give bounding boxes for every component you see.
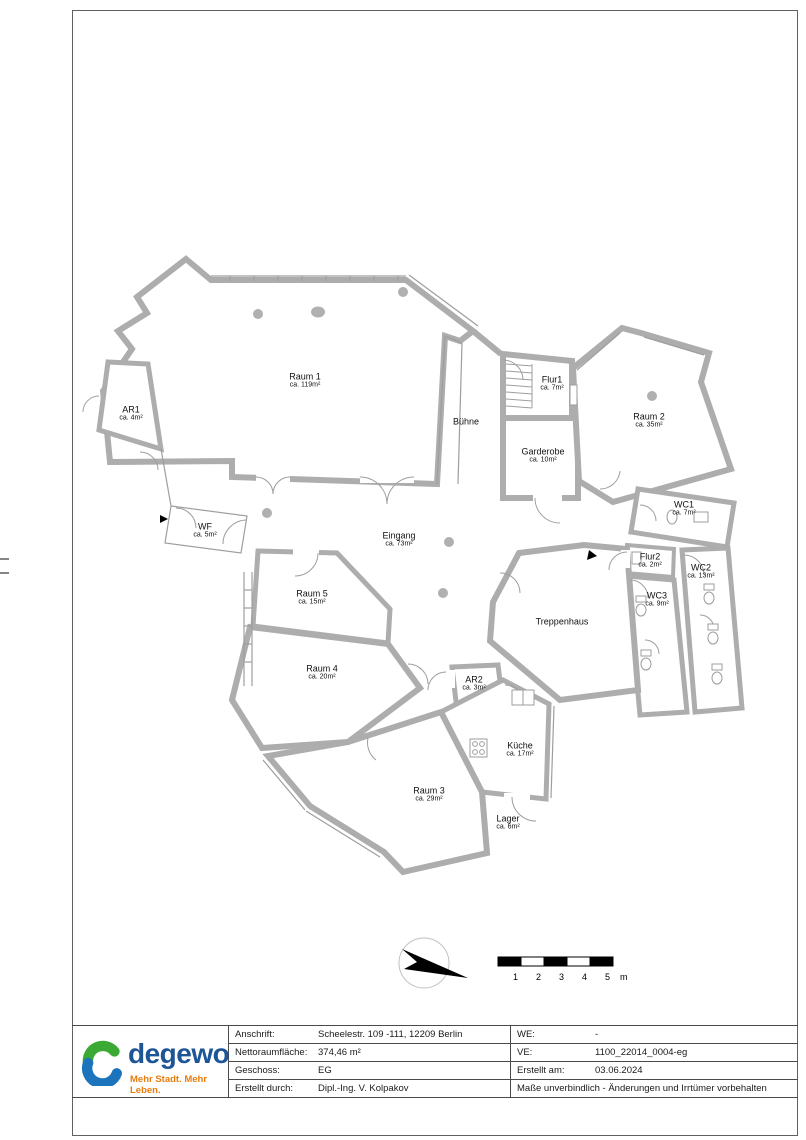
room-label-treppenhaus: Treppenhaus bbox=[536, 617, 589, 626]
field-ve-value: 1100_22014_0004-eg bbox=[595, 1047, 687, 1058]
room-label-buehne: Bühne bbox=[453, 417, 479, 426]
scale-bar-labels: 1 2 3 4 5 m bbox=[498, 972, 648, 984]
degewo-logo: degewo Mehr Stadt. Mehr Leben. bbox=[80, 1036, 230, 1098]
room-label-garderobe: Garderobe ca. 10m² bbox=[521, 448, 564, 465]
field-we-label: WE: bbox=[517, 1029, 535, 1040]
room-label-raum-3: Raum 3 ca. 29m² bbox=[413, 787, 445, 804]
field-nettoraumflaeche-value: 374,46 m² bbox=[318, 1047, 361, 1058]
room-label-lager: Lager ca. 6m² bbox=[496, 815, 519, 832]
floorplan-page: { "floorplan": { "rooms": [ {"name": "Ra… bbox=[0, 0, 806, 1140]
room-label-ar1: AR1 ca. 4m² bbox=[119, 406, 142, 423]
field-nettoraumflaeche-label: Nettoraumfläche: bbox=[235, 1047, 307, 1058]
room-label-wc1: WC1 ca. 7m² bbox=[672, 501, 695, 518]
fold-marks bbox=[0, 559, 9, 573]
field-anschrift-label: Anschrift: bbox=[235, 1029, 275, 1040]
field-we-value: - bbox=[595, 1029, 598, 1040]
room-label-raum-2: Raum 2 ca. 35m² bbox=[633, 413, 665, 430]
room-label-eingang: Eingang ca. 73m² bbox=[382, 532, 415, 549]
field-erstellt-durch-label: Erstellt durch: bbox=[235, 1083, 293, 1094]
field-erstellt-am-value: 03.06.2024 bbox=[595, 1065, 643, 1076]
room-label-wf: WF ca. 5m² bbox=[193, 523, 216, 540]
room-label-ar2: AR2 ca. 3m² bbox=[462, 676, 485, 693]
scale-bar bbox=[498, 957, 613, 966]
room-label-raum-4: Raum 4 ca. 20m² bbox=[306, 665, 338, 682]
field-geschoss-value: EG bbox=[318, 1065, 332, 1076]
room-label-raum-1: Raum 1 ca. 119m² bbox=[289, 373, 321, 390]
room-label-raum-5: Raum 5 ca. 15m² bbox=[296, 590, 328, 607]
brand-wordmark: degewo bbox=[128, 1038, 229, 1070]
room-label-wc3: WC3 ca. 9m² bbox=[645, 592, 668, 609]
degewo-ring-icon bbox=[80, 1040, 126, 1086]
field-anschrift-value: Scheelestr. 109 -111, 12209 Berlin bbox=[318, 1029, 462, 1040]
field-erstellt-durch-value: Dipl.-Ing. V. Kolpakov bbox=[318, 1083, 408, 1094]
north-arrow-icon bbox=[399, 938, 468, 988]
field-ve-label: VE: bbox=[517, 1047, 532, 1058]
room-label-flur2: Flur2 ca. 2m² bbox=[638, 553, 661, 570]
brand-tagline: Mehr Stadt. Mehr Leben. bbox=[130, 1074, 230, 1096]
field-erstellt-am-label: Erstellt am: bbox=[517, 1065, 565, 1076]
room-label-wc2: WC2 ca. 13m² bbox=[687, 564, 714, 581]
floorplan-drawing bbox=[0, 0, 806, 1140]
disclaimer-notice: Maße unverbindlich - Änderungen und Irrt… bbox=[517, 1083, 767, 1094]
room-label-flur1: Flur1 ca. 7m² bbox=[540, 376, 563, 393]
field-geschoss-label: Geschoss: bbox=[235, 1065, 280, 1076]
room-label-kueche: Küche ca. 17m² bbox=[506, 742, 533, 759]
